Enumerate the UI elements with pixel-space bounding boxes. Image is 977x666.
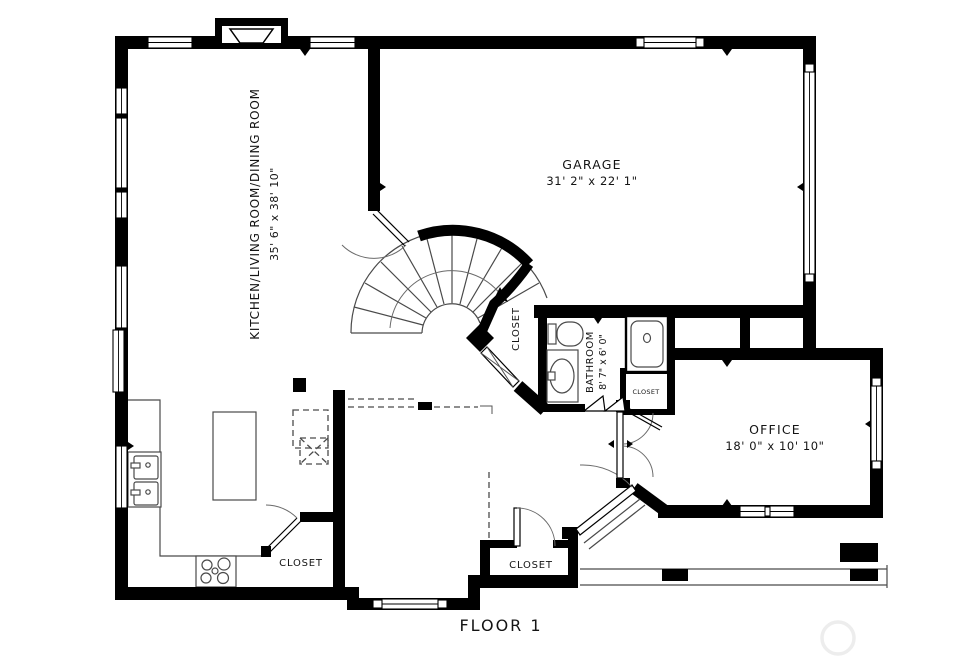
window-left-4 bbox=[116, 266, 127, 328]
living-room-dims: 35' 6" x 38' 10" bbox=[268, 167, 281, 261]
dimension-ticks bbox=[128, 49, 871, 506]
kitchen-sink-icon bbox=[128, 452, 161, 507]
garage-name: GARAGE bbox=[562, 157, 622, 172]
vanity-sink-icon bbox=[547, 350, 578, 402]
office-dims: 18' 0" x 10' 10" bbox=[725, 439, 824, 453]
window-left-1 bbox=[116, 88, 127, 114]
window-left-5 bbox=[113, 330, 124, 392]
kitchen-closet-label: CLOSET bbox=[279, 558, 323, 569]
bathroom-dims: 8' 7" x 6' 0" bbox=[598, 334, 609, 390]
shower-icon bbox=[626, 316, 668, 372]
window-vestibule bbox=[372, 599, 448, 609]
entry-closet-label: CLOSET bbox=[509, 560, 553, 571]
walls bbox=[115, 36, 883, 610]
garage-dims: 31' 2" x 22' 1" bbox=[546, 174, 637, 188]
porch bbox=[580, 565, 887, 588]
kitchen-island bbox=[213, 412, 256, 500]
understair-closet-door bbox=[481, 347, 519, 387]
window-garage-top bbox=[635, 37, 705, 48]
watermark-ring bbox=[822, 622, 854, 654]
fireplace-icon bbox=[215, 18, 288, 49]
window-left-2 bbox=[116, 118, 127, 188]
refrigerator-dashed-icon bbox=[293, 410, 328, 464]
office-french-doors bbox=[617, 412, 653, 478]
floor-title: FLOOR 1 bbox=[459, 616, 542, 635]
window-top-1 bbox=[148, 37, 192, 48]
floor-plan-drawing: KITCHEN/LIVING ROOM/DINING ROOM 35' 6" x… bbox=[0, 0, 977, 666]
front-door bbox=[576, 465, 645, 549]
garage-door bbox=[804, 63, 815, 283]
office-name: OFFICE bbox=[749, 422, 801, 437]
floor-plan-page: KITCHEN/LIVING ROOM/DINING ROOM 35' 6" x… bbox=[0, 0, 977, 666]
stove-icon bbox=[196, 556, 236, 587]
entry-closet-door bbox=[514, 508, 555, 546]
window-office-right bbox=[871, 377, 882, 470]
windows bbox=[113, 37, 882, 609]
kitchen-closet-door bbox=[266, 505, 301, 552]
opening-markers bbox=[348, 399, 492, 542]
bathroom-bifold-door bbox=[584, 396, 625, 411]
window-office-bottom bbox=[740, 506, 794, 517]
window-left-3 bbox=[116, 192, 127, 218]
toilet-icon bbox=[548, 322, 583, 346]
window-kitchen bbox=[116, 446, 127, 508]
bathroom-closet-label: CLOSET bbox=[632, 388, 659, 396]
garage-stair-door bbox=[342, 210, 409, 258]
understair-closet-label: CLOSET bbox=[511, 307, 522, 351]
window-top-2 bbox=[310, 37, 355, 48]
living-room-name: KITCHEN/LIVING ROOM/DINING ROOM bbox=[248, 88, 262, 340]
bathroom-name: BATHROOM bbox=[585, 331, 596, 393]
